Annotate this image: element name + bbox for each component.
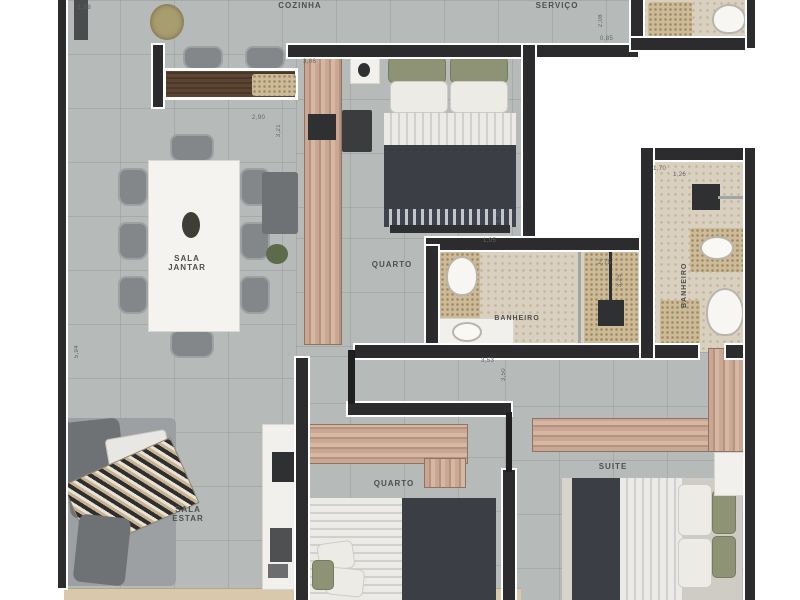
toilet (712, 4, 746, 34)
dim-label: 2,75 (598, 260, 611, 266)
dining-table (148, 160, 240, 332)
sofa-cushion (73, 513, 132, 586)
bar-stool (183, 46, 223, 70)
dim-label: 1,26 (673, 172, 686, 178)
bed-suite (572, 478, 742, 600)
sink (700, 236, 734, 260)
toilet (446, 256, 478, 296)
dining-chair (118, 222, 148, 260)
wall-outer-left (58, 0, 66, 588)
headboard-cushion (450, 57, 508, 83)
bed-sheet (384, 113, 516, 147)
dim-label: 5,94 (74, 345, 80, 358)
wall-lavatory-bottom (631, 38, 755, 50)
wall-lavatory-right (747, 0, 755, 48)
cushion (712, 536, 736, 578)
closet-cabinet (714, 452, 744, 496)
desk (424, 458, 466, 488)
bed-duvet (402, 498, 496, 600)
bed-top-bedroom (384, 57, 516, 233)
wall-bath-right-left (641, 148, 653, 358)
dim-label: 3,25 (617, 274, 623, 287)
floor-plan: COZINHA SERVIÇO SALA JANTAR QUARTO BANHE… (0, 0, 800, 600)
wall-bedroom-bottom-left (296, 358, 308, 600)
bed-bench (390, 225, 510, 233)
media-item (268, 564, 288, 578)
label-dining-line2: JANTAR (157, 263, 217, 272)
toilet (706, 288, 744, 336)
wall-horizontal-mid (355, 345, 653, 358)
dim-label: 1,05 (483, 238, 496, 244)
label-suite: SUITE (583, 462, 643, 471)
counter-top-decor (252, 74, 296, 96)
dining-chair (170, 330, 214, 358)
lamp (358, 63, 370, 77)
lav-counter (648, 2, 692, 38)
wall-bath-right-top (641, 148, 753, 160)
dining-chair (170, 134, 214, 162)
label-kitchen: COZINHA (270, 1, 330, 10)
shower-head (598, 300, 624, 326)
label-bathroom-right: BANHEIRO (680, 250, 689, 320)
headboard-cushion (388, 57, 446, 83)
tv (272, 452, 296, 482)
dim-label: 3,53 (481, 358, 494, 364)
bed-sheet (620, 478, 682, 600)
wall-outer-right (745, 148, 755, 600)
label-living-line2: ESTAR (158, 514, 218, 523)
label-service: SERVIÇO (527, 1, 587, 10)
wall-suite-divider (503, 470, 515, 600)
dining-chair (118, 276, 148, 314)
tv (308, 114, 336, 140)
dim-label: 3,30 (496, 210, 502, 223)
plant (266, 244, 288, 264)
bed-bench (562, 478, 572, 600)
cushion (712, 490, 736, 534)
wardrobe (708, 348, 748, 452)
dim-label: 3,06 (303, 59, 316, 65)
wall-bath-mid-left (426, 246, 438, 358)
media-item (270, 528, 292, 562)
pillow (678, 538, 712, 588)
tv-dresser (342, 110, 372, 152)
wall-bedroom-bottom-top (348, 403, 511, 415)
pillow (678, 484, 712, 536)
shower-glass (718, 196, 746, 199)
dim-label: 1,08 (78, 5, 91, 11)
shower-glass (578, 250, 581, 347)
bar-stool (245, 46, 285, 70)
pillow (390, 81, 448, 113)
wall-kitchen-bottom (288, 45, 638, 57)
label-dining-line1: SALA (157, 254, 217, 263)
label-living-line1: SALA (158, 505, 218, 514)
table-centerpiece (182, 212, 200, 238)
plant (150, 4, 184, 40)
dining-chair (118, 168, 148, 206)
label-bedroom-bottom: QUARTO (364, 479, 424, 488)
bed-duvet (572, 478, 620, 600)
dim-label: 2,90 (252, 115, 265, 121)
cushion (312, 560, 334, 590)
label-bathroom-mid: BANHEIRO (486, 314, 548, 323)
bed-bottom-bedroom (310, 498, 496, 600)
dim-label: 1,70 (653, 166, 666, 172)
wardrobe (532, 418, 712, 452)
pillow (450, 81, 508, 113)
shower-head (692, 184, 720, 210)
dim-label: 3,21 (276, 124, 282, 137)
dim-label: 2,08 (598, 14, 604, 27)
door-bedroom (348, 350, 355, 404)
dim-label: 0,85 (600, 36, 613, 42)
wall-bath-right-bottom-a (651, 345, 698, 358)
dining-chair (240, 276, 270, 314)
door-suite (506, 412, 512, 472)
sideboard (262, 172, 298, 234)
wall-bath-mid-top (426, 238, 653, 250)
sink (452, 322, 482, 342)
dim-label: 3,50 (501, 368, 507, 381)
wall-bedroom-top-right (523, 45, 535, 245)
wall-kitchen-stub (153, 45, 163, 107)
label-bedroom-top: QUARTO (362, 260, 422, 269)
wardrobe-tall (304, 57, 342, 345)
bed-duvet (384, 145, 516, 211)
floor-hallway (296, 356, 511, 408)
